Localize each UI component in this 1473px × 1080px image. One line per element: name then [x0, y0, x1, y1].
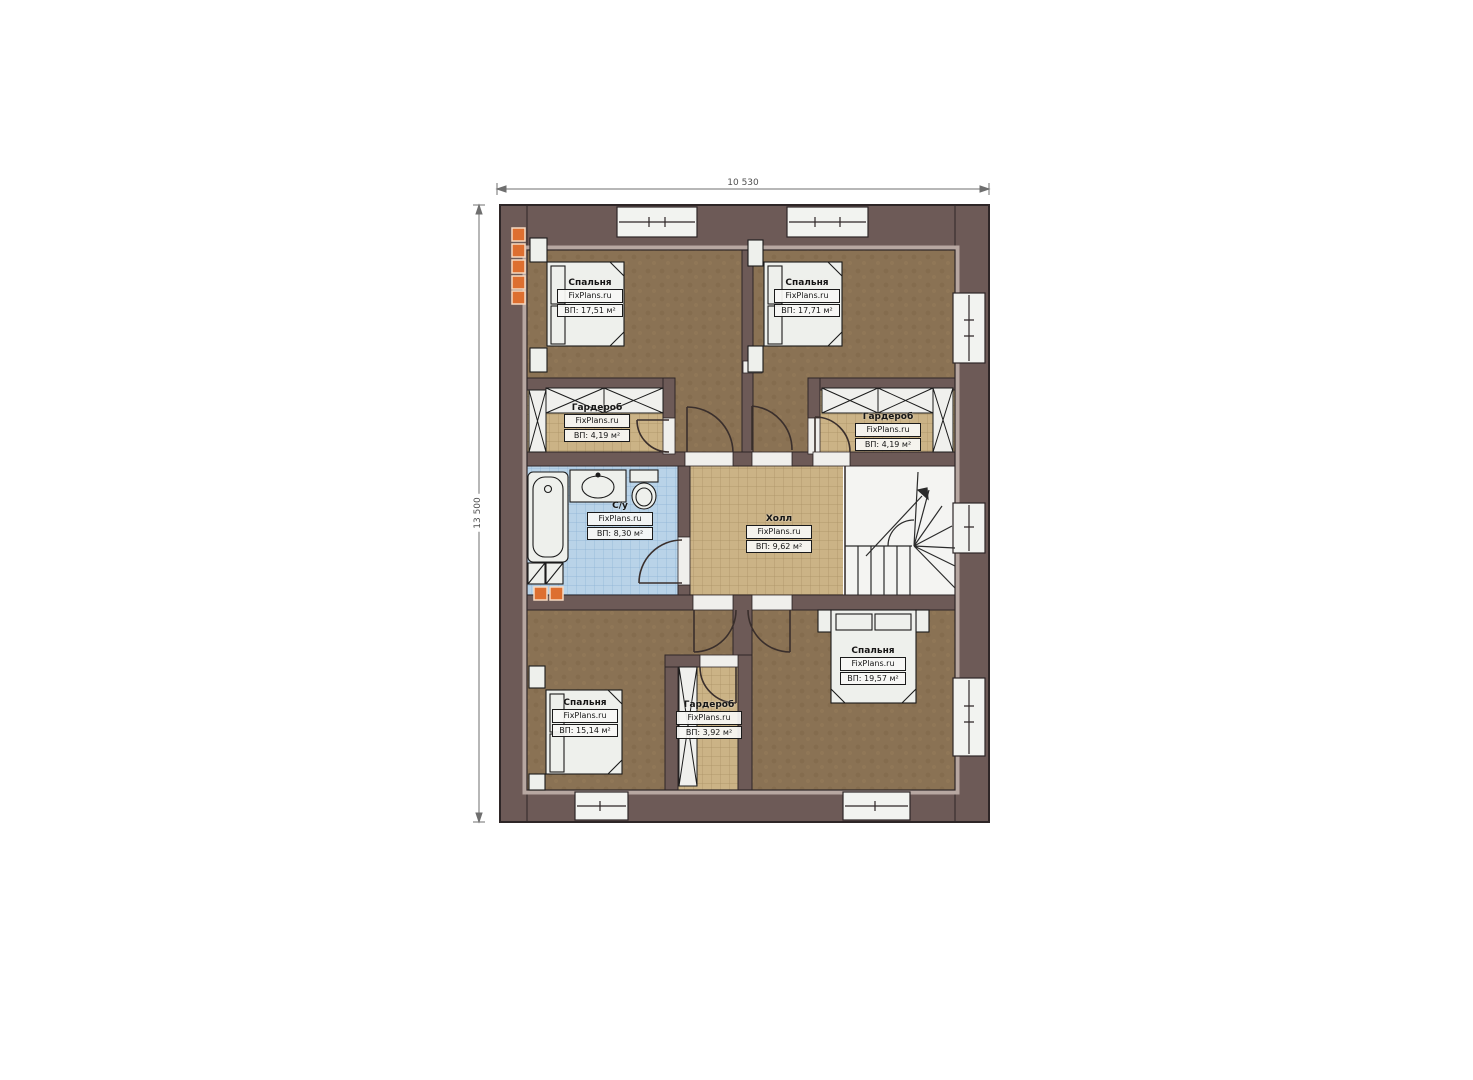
room-brand: FixPlans.ru	[564, 414, 630, 428]
label-wardrobe-bottom: Гардероб FixPlans.ru ВП: 3,92 м²	[676, 700, 742, 740]
sink	[570, 470, 626, 502]
floor-staircase	[845, 466, 955, 595]
label-wardrobe-right: Гардероб FixPlans.ru ВП: 4,19 м²	[855, 412, 921, 452]
room-area: ВП: 4,19 м²	[564, 429, 630, 443]
label-hall: Холл FixPlans.ru ВП: 9,62 м²	[746, 514, 812, 554]
window-top-2	[787, 207, 868, 237]
room-brand: FixPlans.ru	[676, 711, 742, 725]
floor-plan-page: 10 530 13 500 Спальня FixPlans.ru ВП: 17…	[0, 0, 1473, 1080]
label-bedroom-bottom-right: Спальня FixPlans.ru ВП: 19,57 м²	[840, 646, 906, 686]
floor-plan-drawing	[0, 0, 1473, 1080]
floor-bedroom-top-right-ext	[753, 378, 808, 454]
window-right-3	[953, 678, 985, 756]
label-wardrobe-left: Гардероб FixPlans.ru ВП: 4,19 м²	[564, 403, 630, 443]
room-area: ВП: 15,14 м²	[552, 724, 618, 738]
label-bedroom-bottom-left: Спальня FixPlans.ru ВП: 15,14 м²	[552, 698, 618, 738]
duct-shafts	[528, 563, 563, 584]
room-brand: FixPlans.ru	[557, 289, 623, 303]
room-area: ВП: 8,30 м²	[587, 527, 653, 541]
room-brand: FixPlans.ru	[552, 709, 618, 723]
room-area: ВП: 17,51 м²	[557, 304, 623, 318]
bathtub	[528, 472, 568, 562]
room-brand: FixPlans.ru	[746, 525, 812, 539]
room-area: ВП: 3,92 м²	[676, 726, 742, 740]
room-name: Гардероб	[676, 700, 742, 710]
label-bedroom-top-left: Спальня FixPlans.ru ВП: 17,51 м²	[557, 278, 623, 318]
dimension-top: 10 530	[724, 178, 762, 188]
window-bottom-1	[575, 792, 628, 820]
room-name: Спальня	[552, 698, 618, 708]
window-right-1	[953, 293, 985, 363]
room-area: ВП: 4,19 м²	[855, 438, 921, 452]
room-name: Спальня	[557, 278, 623, 288]
room-name: С/у	[587, 501, 653, 511]
room-brand: FixPlans.ru	[855, 423, 921, 437]
floor-bedroom-bottom-left-ext	[665, 610, 733, 655]
room-name: Гардероб	[855, 412, 921, 422]
dimension-left: 13 500	[473, 494, 483, 532]
room-brand: FixPlans.ru	[774, 289, 840, 303]
room-name: Гардероб	[564, 403, 630, 413]
label-bathroom: С/у FixPlans.ru ВП: 8,30 м²	[587, 501, 653, 541]
room-brand: FixPlans.ru	[840, 657, 906, 671]
window-bottom-2	[843, 792, 910, 820]
label-bedroom-top-right: Спальня FixPlans.ru ВП: 17,71 м²	[774, 278, 840, 318]
room-name: Холл	[746, 514, 812, 524]
room-brand: FixPlans.ru	[587, 512, 653, 526]
room-name: Спальня	[840, 646, 906, 656]
room-area: ВП: 19,57 м²	[840, 672, 906, 686]
window-right-2	[953, 503, 985, 553]
room-area: ВП: 9,62 м²	[746, 540, 812, 554]
room-area: ВП: 17,71 м²	[774, 304, 840, 318]
window-top-1	[617, 207, 697, 237]
room-name: Спальня	[774, 278, 840, 288]
